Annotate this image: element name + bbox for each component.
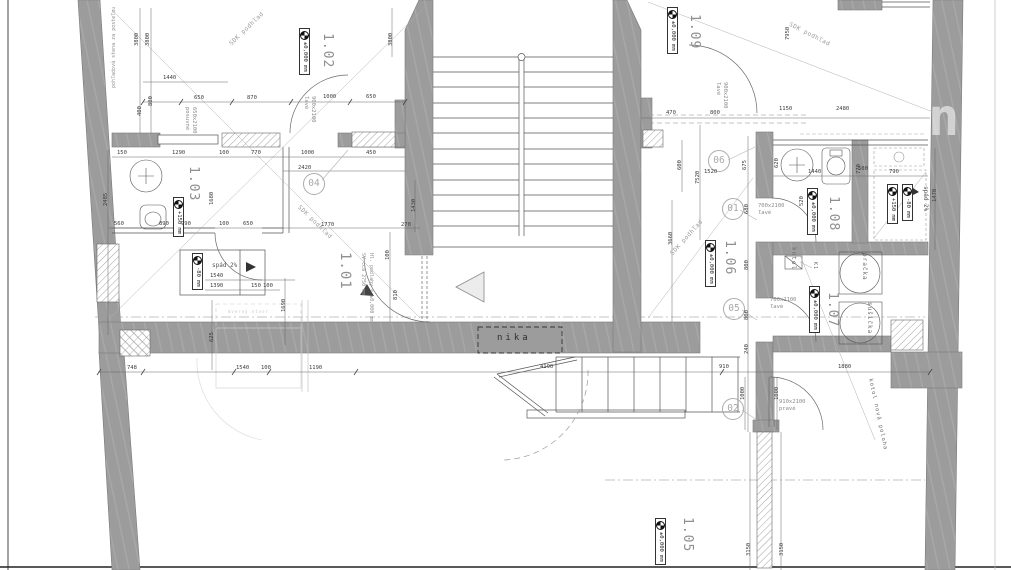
niche-label: nika [497,333,531,343]
dim-label: 650 [366,95,376,101]
level-icon [174,200,183,209]
door-swing: ľavé [714,82,721,109]
level-icon [888,187,897,196]
door-label-108: 700x2100ľavé [758,203,785,217]
dim-label: 748 [127,366,137,372]
position-marker-05: 05 [723,298,745,320]
dim-label: 650 [194,96,204,102]
dim-label: 1520 [704,170,717,176]
room-number-109: 1.09 [688,14,701,49]
dim-label: 1770 [321,223,334,229]
dim-label: 625 [210,332,216,342]
dim-label: 100 [261,366,271,372]
room-number-108: 1.08 [827,196,840,231]
marker-leaders [322,147,812,420]
dim-label: 450 [366,151,376,157]
dim-label: 1540 [210,274,223,280]
level-marker-103-shower: -80 mm [192,253,203,290]
dim-label: 790 [889,170,899,176]
level-value: ±0,000 mm [708,254,714,284]
dim-label: 3800 [146,33,152,46]
dim-label: 800 [745,310,751,320]
dim-label: 600 [678,160,684,170]
door-size: 650x2100 [190,107,197,134]
dim-label: 520 [800,196,806,206]
dim-label: 7520 [696,171,702,184]
level-value: ±0,000 mm [670,21,676,51]
level-icon [810,289,819,298]
door-label-103: 650x2100posuvné [183,107,197,134]
door-label-105: 910x2100pravé [779,399,806,413]
position-marker-04: 04 [303,173,325,195]
dim-label: 400 [138,106,144,116]
dim-label: 3150 [747,543,753,556]
level-marker-107: ±0,000 mm [809,286,820,333]
dim-label: 810 [394,290,400,300]
level-value: ±0,000 mm [302,42,308,72]
room-number-101: 1.01 [338,252,352,290]
dim-label: 1290 [172,151,185,157]
level-icon [193,256,202,265]
level-icon [808,191,817,200]
level-icon [706,243,715,252]
door-size: 700x2100 [758,203,785,210]
sheet-edges [0,0,1011,570]
dim-label: 150 [117,151,127,157]
level-marker-108: ±0,000 mm [807,188,818,235]
level-value: ±0,000 mm [812,300,818,330]
dim-label: 1190 [309,366,322,372]
level-marker-105: ±0,000 mm [655,518,666,565]
floor-plan-drawing [0,0,1011,570]
dim-label: 890 [159,222,169,228]
door-swing: ľavé [770,304,797,311]
dim-label: 1540 [236,366,249,372]
dim-label: 2485 [104,193,110,206]
entry-triangle [456,272,484,302]
dim-label: 1000 [775,387,781,400]
door-swing: ľavé [758,210,785,217]
watermark-letter: n [928,92,959,144]
door-size: 700x2100 [770,297,797,304]
dim-label: 990 [181,222,191,228]
dim-label: 1150 [779,107,792,113]
level-icon [668,10,677,19]
level-icon [656,521,665,530]
door-swing: pravé [779,406,806,413]
dim-label: 1440 [163,76,176,82]
dim-label: 1000 [323,95,336,101]
slope-note-108: spád 2% [922,186,929,211]
dim-label: 2420 [298,166,311,172]
dim-label: 1390 [210,284,223,290]
dim-label: 4190 [540,365,553,371]
dim-label: 1470 [933,189,939,202]
dim-label: 1000 [301,151,314,157]
dim-label: 2480 [836,107,849,113]
level-marker-103-floor: +150 mm [173,197,184,237]
door-label-107: 700x2100ľavé [770,297,797,311]
door-swing: ľavé [302,96,309,123]
level-value: -80 mm [195,267,201,287]
staircase-bottom [494,357,740,460]
position-marker-02: 02 [722,398,744,420]
dim-label: 270 [401,223,411,229]
room-101-height-note: SV cca 2750 mm [360,253,366,295]
dim-label: 100 [263,284,273,290]
dim-label: 470 [666,111,676,117]
dim-label: 240 [745,344,751,354]
dim-label: 800 [710,111,720,117]
level-icon [300,31,309,40]
dryer-label: sušička [866,302,873,334]
level-icon [903,187,912,196]
staircase-top [433,54,613,248]
dim-label: 7950 [786,27,792,40]
door-label-109: 900x2100ľavé [714,82,728,109]
room-number-103: 1.03 [187,166,200,201]
dim-label: 770 [857,164,863,174]
room-number-105: 1.05 [681,517,694,552]
dim-label: 675 [743,160,749,170]
level-marker-102: ±0,000 mm [299,28,310,75]
door-size: 910x2100 [779,399,806,406]
dim-label: 3150 [780,543,786,556]
level-marker-109: ±0,000 mm [667,7,678,54]
dim-label: 100 [386,250,392,260]
dim-label: 620 [775,158,781,168]
dim-label: 650 [243,222,253,228]
dim-label: 800 [745,260,751,270]
level-value: -80 mm [905,198,911,218]
slope-note-103: spád 2% [212,262,237,269]
boiler-label: kotol [790,247,797,270]
dim-label: 1880 [838,365,851,371]
washer-label: pračka [861,253,868,281]
door-size: 900x2100 [309,96,316,123]
position-marker-01: 01 [722,198,744,220]
dim-label: 560 [114,222,124,228]
dim-label: 1440 [808,170,821,176]
dim-label: 680 [745,204,751,214]
dim-label: 870 [247,96,257,102]
door-swing: posuvné [183,107,190,134]
room-number-106: 1.06 [723,240,736,275]
floor-plan-sheet: 1.02 1.09 1.03 1.01 SV cca 2750 mm Hl. p… [0,0,1011,570]
dim-label: 1690 [282,299,288,312]
room-number-107: 1.07 [826,292,839,327]
dim-label: 910 [719,365,729,371]
level-marker-108-floor: +150 mm [887,184,898,224]
faint-note: dverný otvor [228,309,269,314]
level-marker-108-shower: -80 mm [902,184,913,221]
dim-label: 800 [149,96,155,106]
dim-label: 100 [219,222,229,228]
level-value: ±0,000 mm [810,202,816,232]
door-label-102: 900x2100ľavé [302,96,316,123]
room-101-floor-note: Hl. podlahy = ±0,000 mm [368,253,374,322]
door-size: 900x2100 [721,82,728,109]
room-number-102: 1.02 [321,33,334,68]
dim-label: 1000 [741,387,747,400]
boiler-tag: K1 [812,262,818,270]
dim-label: 1430 [412,199,418,212]
dim-label: 3660 [669,232,675,245]
level-marker-106: ±0,000 mm [705,240,716,287]
dim-label: 3800 [389,33,395,46]
bed-wall-note: pohľadová stena za posteľou [111,7,117,88]
dim-label: 3800 [135,33,141,46]
dim-label: 1680 [210,192,216,205]
dim-label: 770 [251,151,261,157]
centerlines [95,115,926,480]
dim-label: 150 [251,284,261,290]
level-value: +150 mm [890,198,896,221]
dim-label: 100 [219,151,229,157]
level-value: ±0,000 mm [658,532,664,562]
